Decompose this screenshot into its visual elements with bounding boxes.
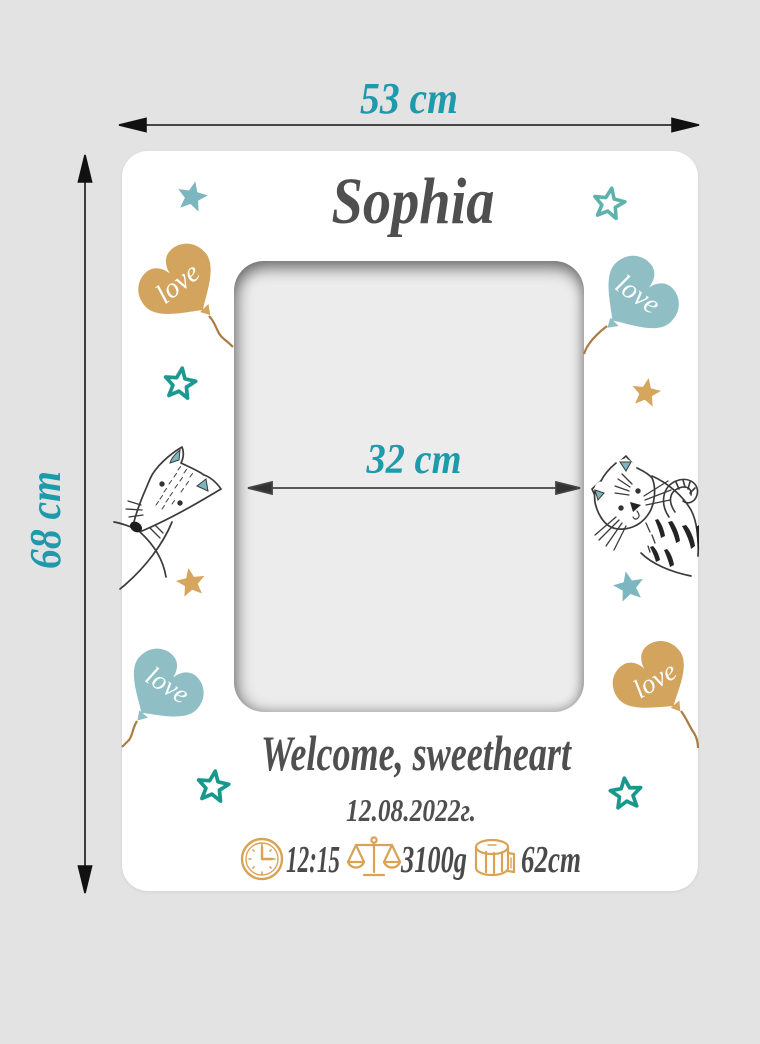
svg-text:Sophia: Sophia bbox=[332, 165, 495, 238]
svg-text:32 cm: 32 cm bbox=[366, 437, 462, 483]
svg-text:3100g: 3100g bbox=[400, 839, 467, 881]
svg-text:12:15: 12:15 bbox=[286, 839, 340, 881]
svg-text:Welcome, sweetheart: Welcome, sweetheart bbox=[261, 725, 573, 781]
svg-text:62cm: 62cm bbox=[521, 839, 581, 881]
svg-text:53 cm: 53 cm bbox=[360, 74, 458, 123]
svg-text:12.08.2022г.: 12.08.2022г. bbox=[346, 792, 476, 828]
svg-text:68 cm: 68 cm bbox=[21, 471, 70, 569]
